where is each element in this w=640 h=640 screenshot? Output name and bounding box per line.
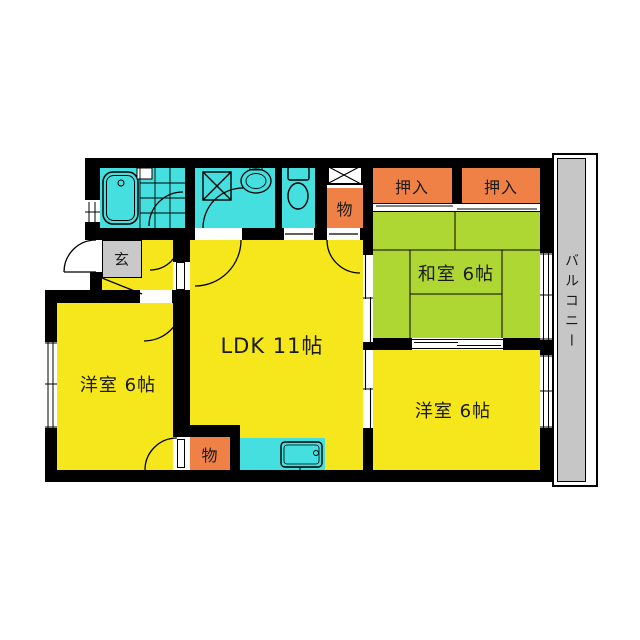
ldk-label: LDK 11帖 [220, 330, 323, 360]
storage-top-label: 物 [336, 196, 353, 220]
entrance-step-line [102, 278, 142, 294]
washitsu-slide-door-icon [363, 255, 373, 342]
floor-plan: LDK 11帖 和室 6帖 洋室 6帖 洋室 6帖 押入 押入 物 物 玄 バル… [0, 0, 640, 640]
storage-bottom-door-arc [145, 438, 177, 470]
japanese-room-label: 和室 6帖 [418, 260, 494, 286]
washing-machine-icon [203, 172, 231, 200]
balcony-label: バルコニー [556, 228, 586, 378]
washbasin-icon [241, 165, 271, 193]
storage-bottom-label: 物 [201, 442, 218, 466]
window-washitsu-icon [540, 253, 552, 340]
bathroom-vent-icon [85, 202, 100, 222]
kitchen-sink-icon [281, 442, 322, 477]
closet-left-label: 押入 [395, 174, 429, 198]
bedroom-left-door-arc [144, 303, 182, 341]
toilet-icon [288, 167, 309, 209]
hall-door-arc [150, 240, 180, 270]
washitsu-south-fusuma-icon [412, 340, 503, 349]
western-right-slide-door-icon [363, 350, 373, 428]
western-room-right-label: 洋室 6帖 [415, 397, 491, 423]
western-room-left-label: 洋室 6帖 [80, 371, 156, 397]
closet-right-label: 押入 [484, 174, 518, 198]
bathtub-icon [103, 168, 152, 224]
closet-fusuma-icon [373, 204, 540, 212]
storage-top-door-arc [327, 240, 360, 273]
entrance-door-arc [64, 240, 96, 272]
shaft-x-icon [327, 166, 361, 184]
window-left-icon [45, 342, 57, 428]
entrance-label: 玄 [114, 249, 130, 270]
bathroom-door-arc [149, 192, 183, 226]
washroom-door-arc [195, 240, 241, 286]
window-western-right-icon [540, 355, 552, 428]
